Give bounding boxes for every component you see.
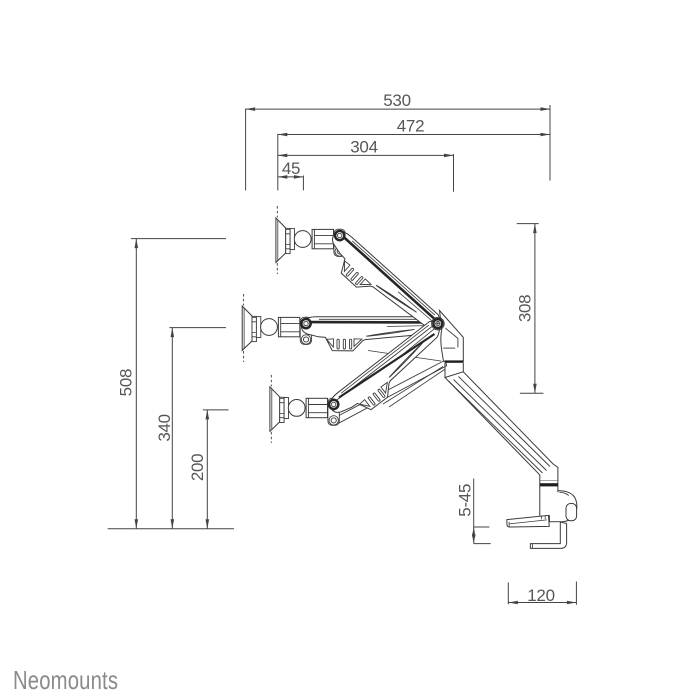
svg-text:5-45: 5-45 — [456, 484, 475, 517]
svg-text:472: 472 — [397, 117, 424, 136]
svg-text:304: 304 — [350, 138, 377, 157]
svg-text:120: 120 — [527, 586, 554, 605]
svg-text:200: 200 — [188, 454, 207, 481]
svg-text:308: 308 — [516, 295, 535, 322]
svg-text:508: 508 — [117, 369, 136, 396]
svg-text:340: 340 — [155, 414, 174, 441]
svg-text:530: 530 — [383, 91, 410, 110]
svg-text:45: 45 — [282, 159, 300, 178]
